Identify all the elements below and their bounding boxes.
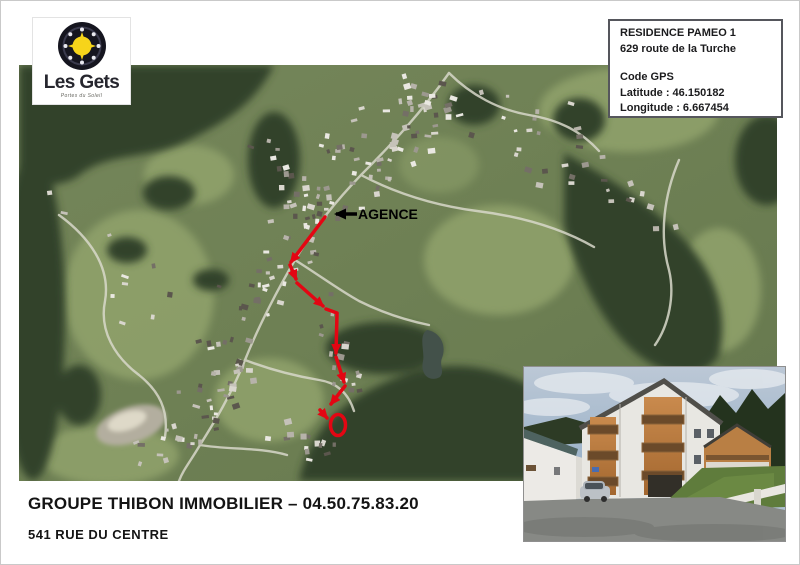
logo-text: Les Gets xyxy=(44,73,119,92)
agency-address: 541 RUE DU CENTRE xyxy=(28,527,169,542)
logo-tagline: Portes du Soleil xyxy=(61,93,102,99)
gps-latitude: Latitude : 46.150182 xyxy=(620,86,777,102)
agency-contact: GROUPE THIBON IMMOBILIER – 04.50.75.83.2… xyxy=(28,494,419,514)
gps-longitude: Longitude : 6.667454 xyxy=(620,101,777,117)
sun-icon xyxy=(56,20,108,72)
gps-heading: Code GPS xyxy=(620,70,777,86)
residence-address: 629 route de la Turche xyxy=(620,42,777,58)
agence-label: AGENCE xyxy=(358,206,418,222)
residence-name: RESIDENCE PAMEO 1 xyxy=(620,26,777,42)
les-gets-logo: Les Gets Portes du Soleil xyxy=(33,18,130,104)
gps-info-box: RESIDENCE PAMEO 1 629 route de la Turche… xyxy=(608,19,783,118)
residence-photo xyxy=(523,366,786,542)
info-gap xyxy=(620,57,777,70)
